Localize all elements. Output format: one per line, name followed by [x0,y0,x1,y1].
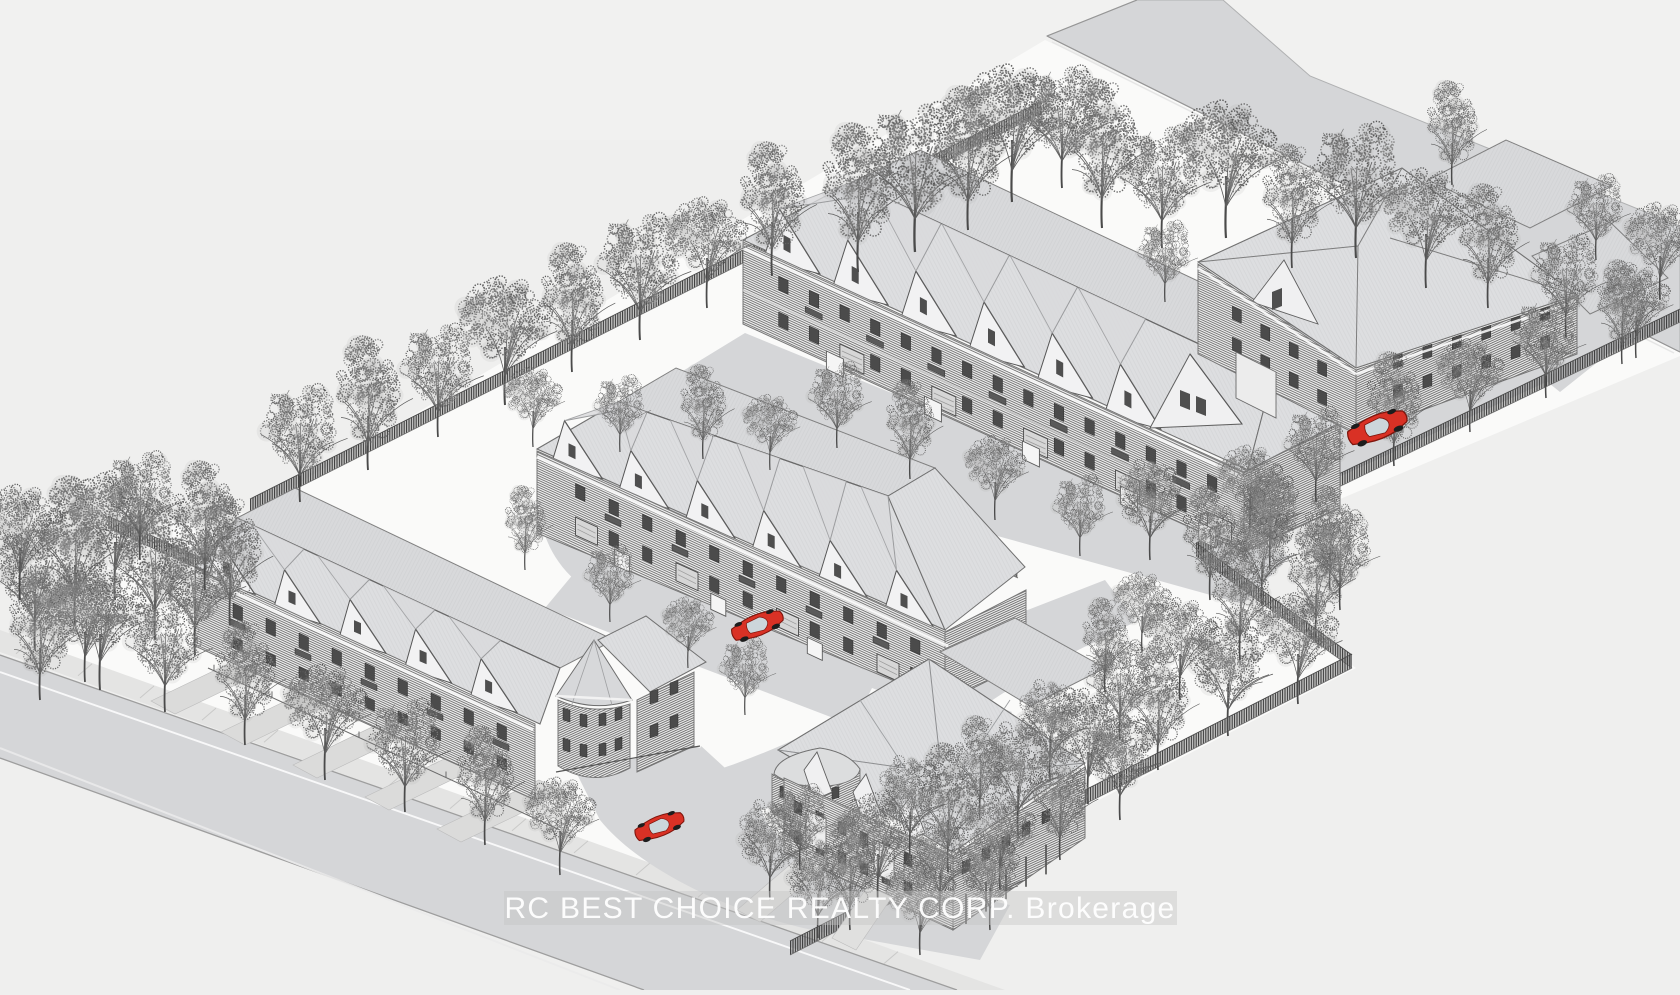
svg-text:RC BEST CHOICE REALTY CORP. Br: RC BEST CHOICE REALTY CORP. Brokerage [504,892,1175,925]
